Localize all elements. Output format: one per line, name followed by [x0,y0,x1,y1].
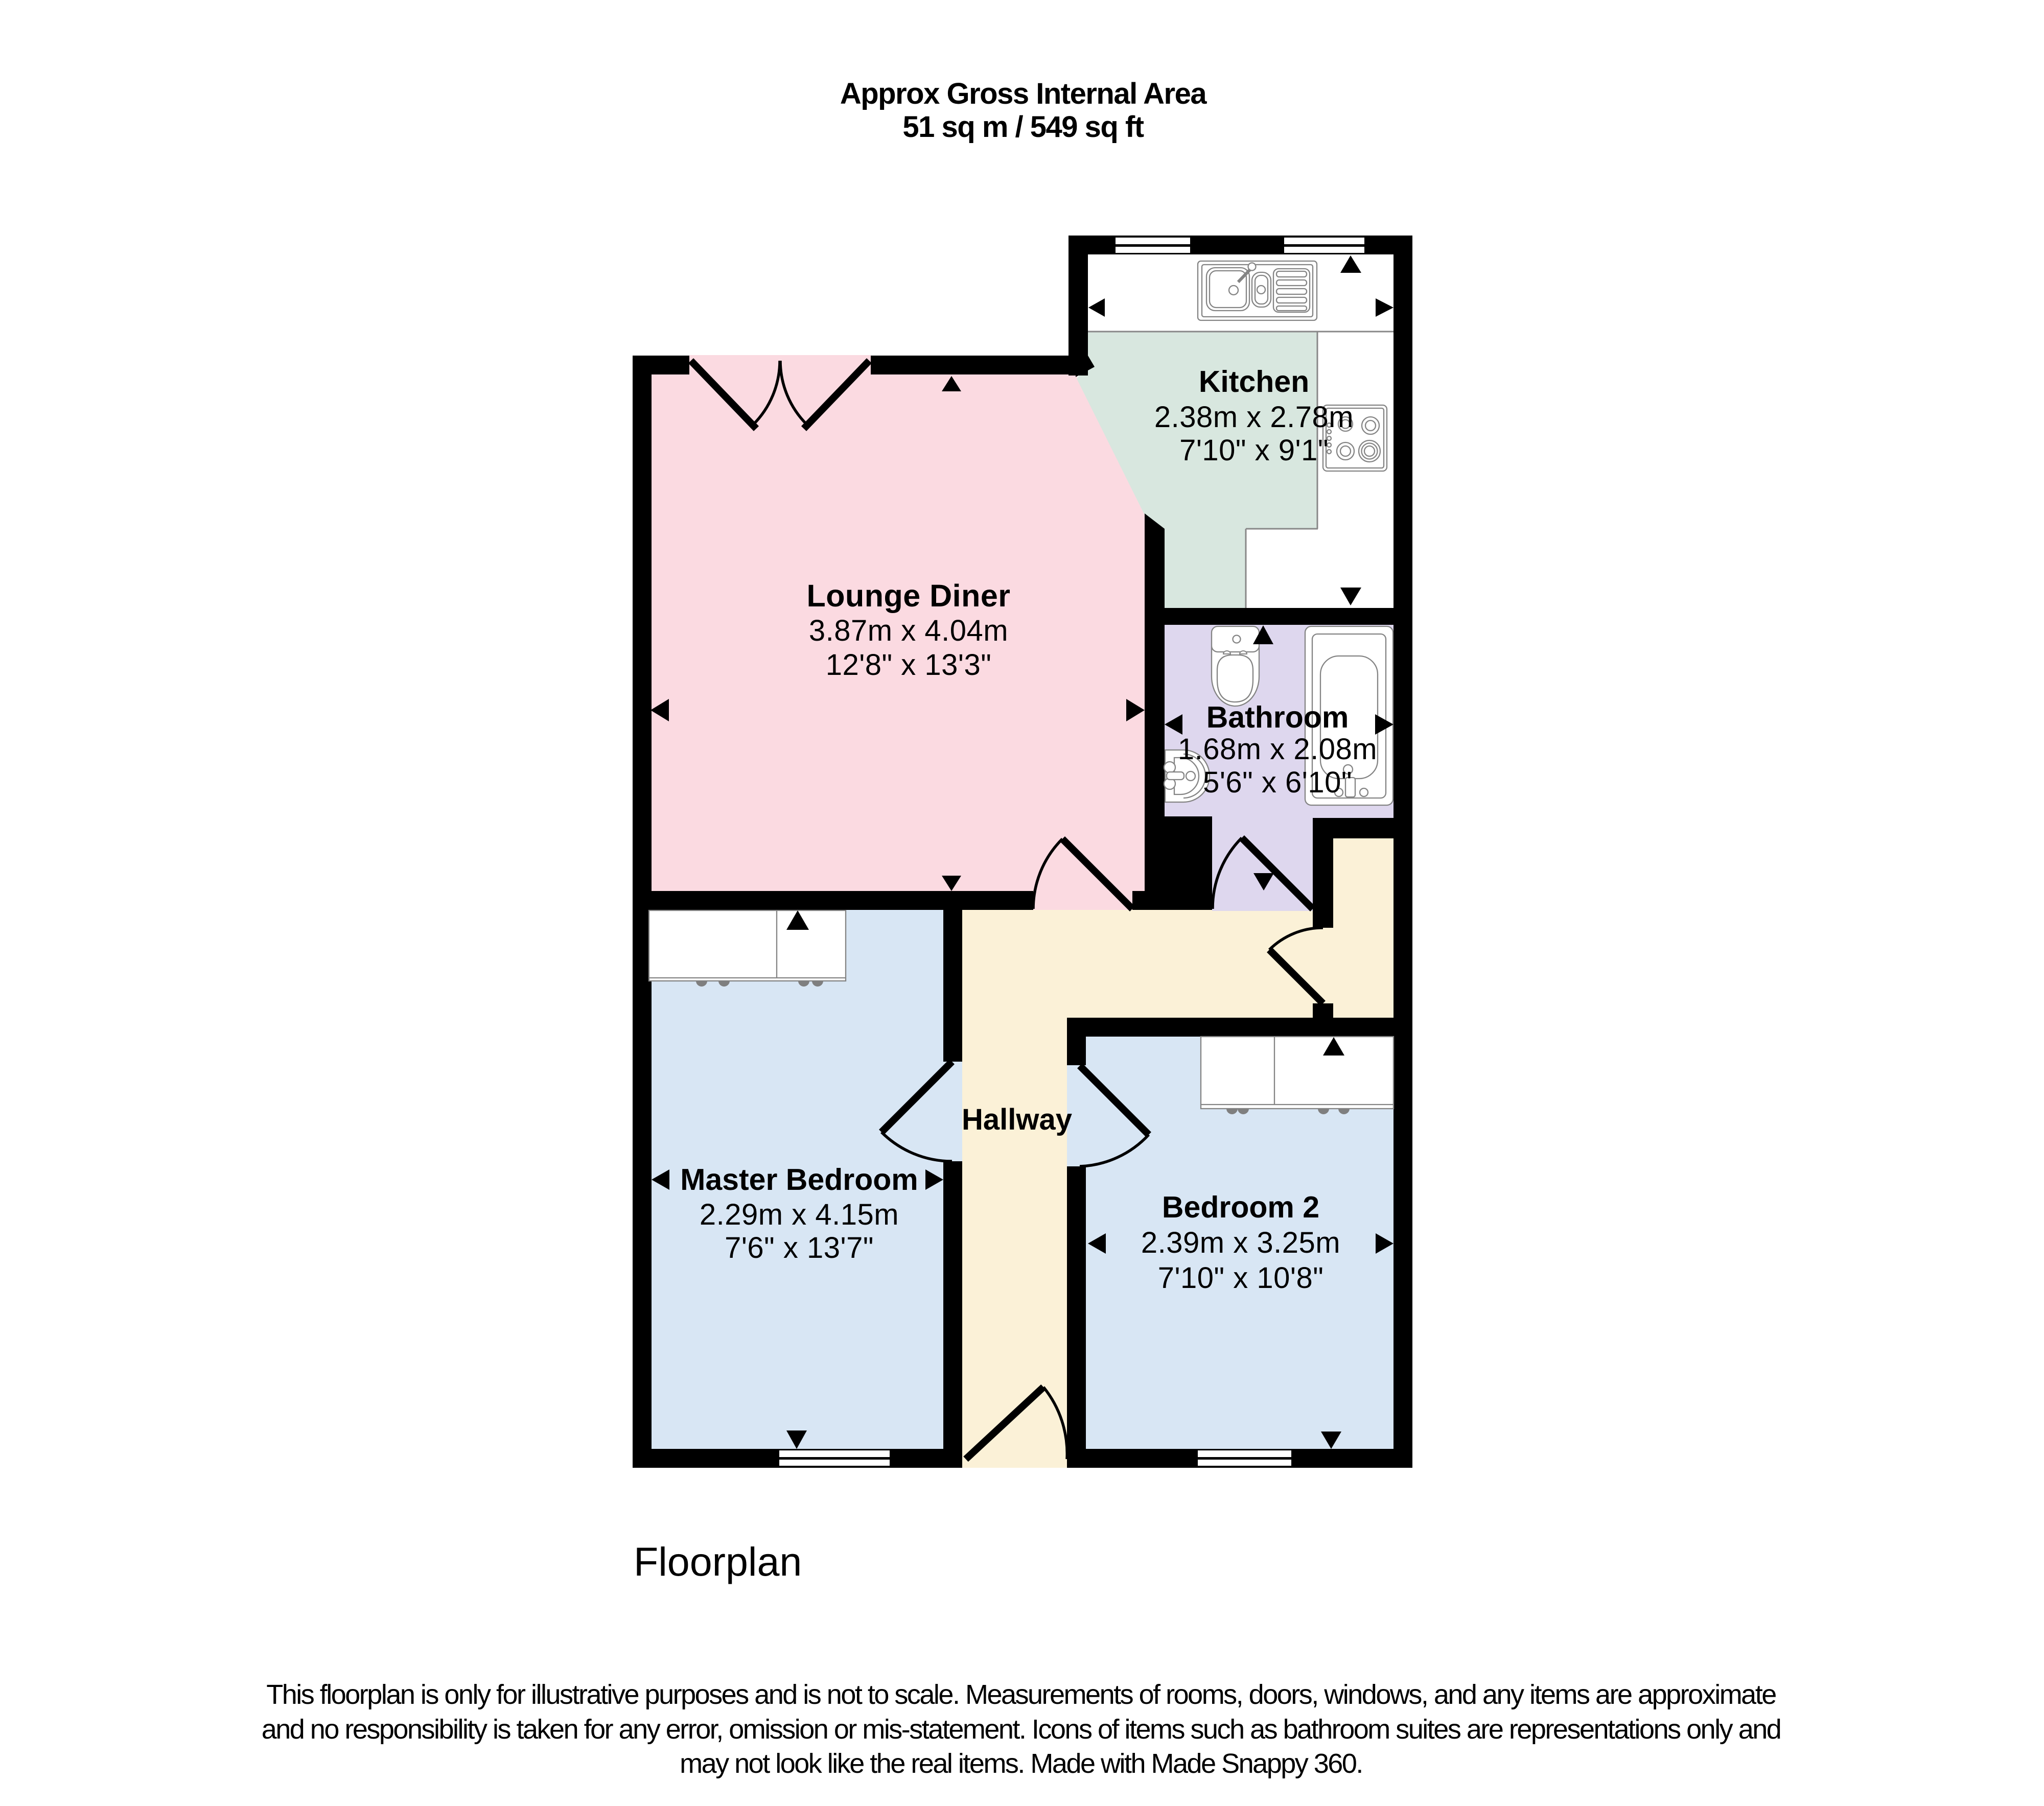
svg-text:Kitchen: Kitchen [1199,365,1309,398]
svg-text:Bedroom 2: Bedroom 2 [1162,1190,1319,1224]
svg-text:Floorplan: Floorplan [634,1539,802,1584]
svg-text:Bathroom: Bathroom [1206,700,1349,734]
svg-text:7'6" x 13'7": 7'6" x 13'7" [725,1231,874,1264]
svg-text:1.68m x 2.08m: 1.68m x 2.08m [1178,733,1377,766]
svg-text:2.38m x 2.78m: 2.38m x 2.78m [1154,401,1354,434]
svg-text:Master Bedroom: Master Bedroom [680,1163,918,1197]
svg-text:may not look like the real ite: may not look like the real items. Made w… [680,1748,1362,1779]
svg-text:Lounge Diner: Lounge Diner [806,578,1010,613]
svg-text:3.87m x 4.04m: 3.87m x 4.04m [809,614,1008,647]
svg-text:5'6" x 6'10": 5'6" x 6'10" [1203,766,1352,799]
svg-text:Approx Gross Internal Area: Approx Gross Internal Area [840,77,1207,110]
svg-text:2.39m x 3.25m: 2.39m x 3.25m [1141,1226,1340,1259]
svg-text:7'10" x 10'8": 7'10" x 10'8" [1158,1261,1324,1295]
svg-text:12'8" x 13'3": 12'8" x 13'3" [826,648,992,682]
svg-text:51 sq m / 549 sq ft: 51 sq m / 549 sq ft [902,110,1144,144]
svg-text:Hallway: Hallway [962,1103,1072,1136]
svg-text:2.29m x 4.15m: 2.29m x 4.15m [700,1198,899,1231]
svg-text:This floorplan is only for ill: This floorplan is only for illustrative … [266,1679,1776,1710]
svg-text:and no responsibility is taken: and no responsibility is taken for any e… [262,1714,1781,1745]
svg-text:7'10" x 9'1": 7'10" x 9'1" [1179,434,1329,467]
